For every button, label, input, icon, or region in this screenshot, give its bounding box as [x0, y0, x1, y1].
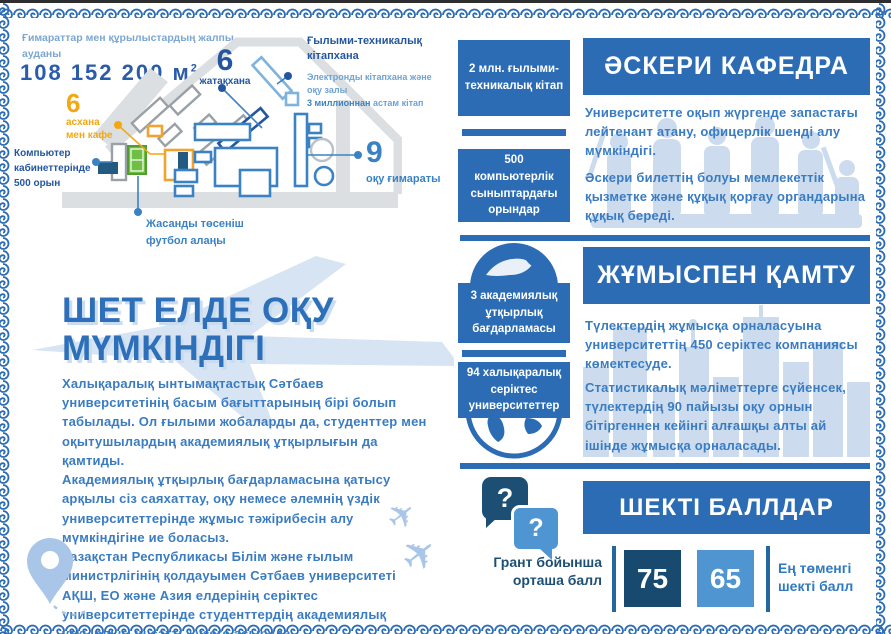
ornament-border-right-icon: [876, 3, 891, 634]
title-line1: ШЕТ ЕЛДЕ ОҚУ: [62, 292, 334, 330]
employment-section-header: ЖҰМЫСПЕН ҚАМТУ: [583, 247, 870, 304]
canteen-number: 6: [66, 90, 146, 116]
stat-books: 2 млн. ғылыми-техникалық кітап: [458, 40, 570, 116]
study-label: оқу ғимараты: [366, 172, 446, 187]
military-section-header: ӘСКЕРИ КАФЕДРА: [583, 38, 870, 95]
dormitory-number: 6: [190, 46, 260, 76]
stat-computer-seats: 500 компьютерлік сыныптардағы орындар: [458, 149, 570, 222]
dormitory-label: жатақхана: [190, 76, 260, 87]
location-pin-icon: [20, 536, 120, 622]
grant-score-value: 75: [624, 550, 681, 607]
library-line2-bold: 3 миллионнан: [307, 98, 370, 108]
question-mark-icon: ?: [528, 514, 543, 543]
min-score-value: 65: [697, 550, 754, 607]
employment-paragraph-1: Түлектердің жұмысқа орналасуына универси…: [585, 316, 872, 374]
military-paragraph-2: Әскери билеттің болуы мемлекеттік қызмет…: [585, 168, 872, 226]
study-number: 9: [366, 138, 446, 168]
library-line2: 3 миллионнан астам кітап: [307, 97, 447, 110]
section-divider: [460, 463, 870, 469]
globe-north-icon: [466, 241, 562, 287]
question-mark-icon: ?: [497, 483, 514, 514]
employment-paragraph-2: Статистикалық мәліметтерге сүйенсек, түл…: [585, 378, 872, 455]
library-line1: Электронды кітапхана және оқу залы: [307, 71, 447, 97]
grant-score-label: Грант бойынша орташа балл: [490, 554, 602, 589]
callout-study-buildings: 9 оқу ғимараты: [366, 138, 446, 187]
callout-library: Ғылыми-техникалық кітапхана Электронды к…: [307, 34, 447, 110]
page-title: ШЕТ ЕЛДЕ ОҚУ МҮМКІНДІГІ: [62, 292, 334, 368]
stat-partner-universities: 94 халықаралық серіктес университеттер: [458, 362, 570, 418]
military-paragraph-1: Университетте оқып жүргенде запастағы ле…: [585, 103, 872, 161]
callout-dormitory: 6 жатақхана: [190, 46, 260, 87]
callout-canteen: 6 асхана мен кафе: [66, 90, 146, 142]
divider-bar: [462, 350, 566, 357]
score-divider-right: [766, 546, 770, 612]
library-line2-rest: астам кітап: [370, 98, 423, 108]
canteen-label: асхана мен кафе: [66, 116, 116, 142]
ornament-border-top-icon: [0, 3, 891, 18]
paragraph: Халықаралық ынтымақтастық Сәтбаев универ…: [62, 374, 428, 470]
callout-football-field: Жасанды төсеніш футбол алаңы: [146, 216, 286, 249]
infographic-page: Ғимараттар мен құрылыстардың жалпы аудан…: [0, 0, 891, 634]
library-title: Ғылыми-техникалық кітапхана: [307, 34, 447, 65]
divider-bar: [462, 129, 566, 136]
ornament-border-left-icon: [0, 3, 15, 634]
stat-mobility-programs: 3 академиялық ұтқырлық бағдарламасы: [458, 283, 570, 343]
threshold-section-header: ШЕКТІ БАЛЛДАР: [583, 481, 870, 534]
score-divider-left: [612, 546, 616, 612]
callout-computer-rooms: Компьютер кабинеттерінде 500 орын: [14, 146, 96, 191]
title-line2: МҮМКІНДІГІ: [62, 330, 334, 368]
min-score-label: Ең төменгі шекті балл: [778, 560, 888, 595]
question-bubble-light: ?: [511, 505, 561, 552]
question-bubble-dark-tail: [486, 517, 498, 528]
